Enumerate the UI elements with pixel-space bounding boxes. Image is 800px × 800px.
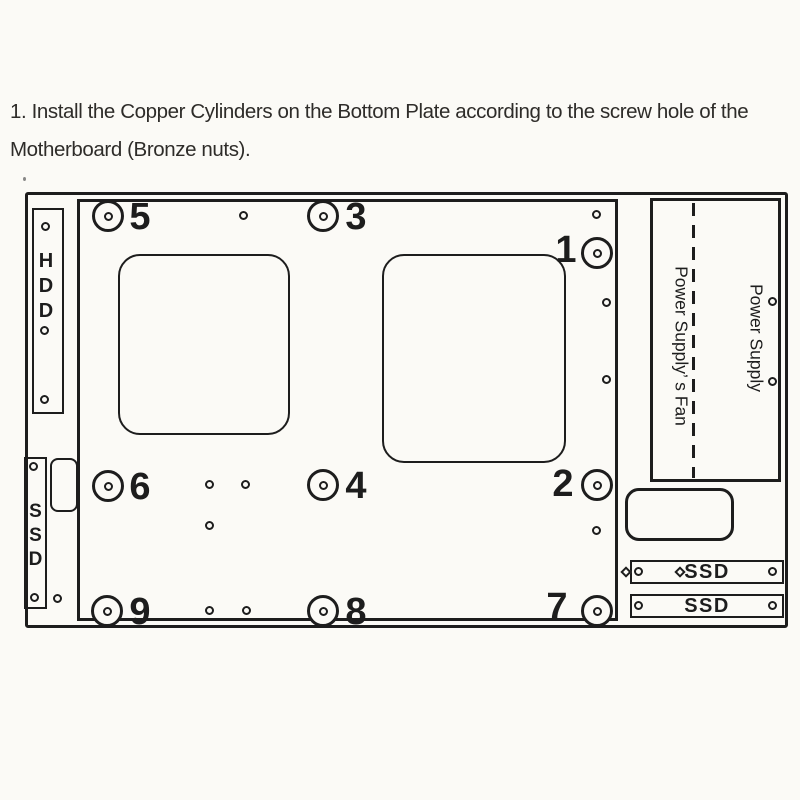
mounting-hole: [768, 377, 777, 386]
mounting-hole: [205, 606, 214, 615]
hdd-label: HDD: [36, 250, 56, 325]
screw-center-hole: [593, 481, 602, 490]
ssd-left-label: SSD: [26, 501, 45, 573]
step-instruction-line-2: Motherboard (Bronze nuts).: [10, 131, 800, 169]
screw-center-hole: [103, 607, 112, 616]
mounting-hole: [30, 593, 39, 602]
mounting-hole: [768, 567, 777, 576]
screw-hole-4: [307, 469, 339, 501]
screw-center-hole: [104, 212, 113, 221]
screw-hole-7: [581, 595, 613, 627]
mounting-hole: [40, 395, 49, 404]
screw-hole-2: [581, 469, 613, 501]
screw-hole-6: [92, 470, 124, 502]
screw-hole-5: [92, 200, 124, 232]
screw-number-9: 9: [129, 593, 150, 631]
step-instruction-line-1: 1. Install the Copper Cylinders on the B…: [10, 93, 800, 131]
screw-number-6: 6: [129, 468, 150, 506]
mounting-hole: [592, 526, 601, 535]
power-supply-fan-label: Power Supply’ s Fan: [671, 266, 692, 426]
mounting-hole: [241, 480, 250, 489]
scan-speck: [23, 177, 26, 181]
screw-number-4: 4: [345, 467, 366, 505]
mounting-hole: [602, 298, 611, 307]
screw-center-hole: [319, 212, 328, 221]
mounting-hole: [634, 601, 643, 610]
plate-cutout-right: [382, 254, 566, 463]
ssd-bay-top-label: SSD: [684, 562, 730, 582]
mounting-hole: [768, 601, 777, 610]
mounting-hole: [53, 594, 62, 603]
mounting-hole: [29, 462, 38, 471]
screw-center-hole: [319, 607, 328, 616]
screw-number-5: 5: [129, 198, 150, 236]
power-supply-fan-divider: [692, 203, 695, 478]
ssd-bay-bottom: SSD: [630, 594, 784, 618]
mounting-hole: [205, 480, 214, 489]
mounting-hole: [239, 211, 248, 220]
io-notch: [50, 458, 78, 512]
screw-number-8: 8: [345, 593, 366, 631]
mounting-hole: [602, 375, 611, 384]
plate-cutout-left: [118, 254, 290, 435]
manual-page: 1. Install the Copper Cylinders on the B…: [0, 0, 800, 800]
screw-number-2: 2: [552, 465, 573, 503]
screw-number-7: 7: [546, 588, 567, 626]
mounting-hole: [768, 297, 777, 306]
screw-number-1: 1: [555, 231, 576, 269]
power-supply-cutout: [625, 488, 734, 541]
ssd-bay-top: SSD: [630, 560, 784, 584]
screw-number-3: 3: [345, 198, 366, 236]
mounting-hole: [592, 210, 601, 219]
screw-center-hole: [319, 481, 328, 490]
screw-hole-9: [91, 595, 123, 627]
screw-center-hole: [104, 482, 113, 491]
screw-hole-8: [307, 595, 339, 627]
mounting-hole: [41, 222, 50, 231]
power-supply-label: Power Supply: [746, 284, 767, 392]
step-instruction: 1. Install the Copper Cylinders on the B…: [10, 93, 800, 169]
mounting-hole: [40, 326, 49, 335]
screw-center-hole: [593, 607, 602, 616]
screw-hole-3: [307, 200, 339, 232]
screw-center-hole: [593, 249, 602, 258]
mounting-hole: [242, 606, 251, 615]
ssd-bay-bottom-label: SSD: [684, 596, 730, 616]
mounting-hole: [634, 567, 643, 576]
mounting-hole: [205, 521, 214, 530]
screw-hole-1: [581, 237, 613, 269]
